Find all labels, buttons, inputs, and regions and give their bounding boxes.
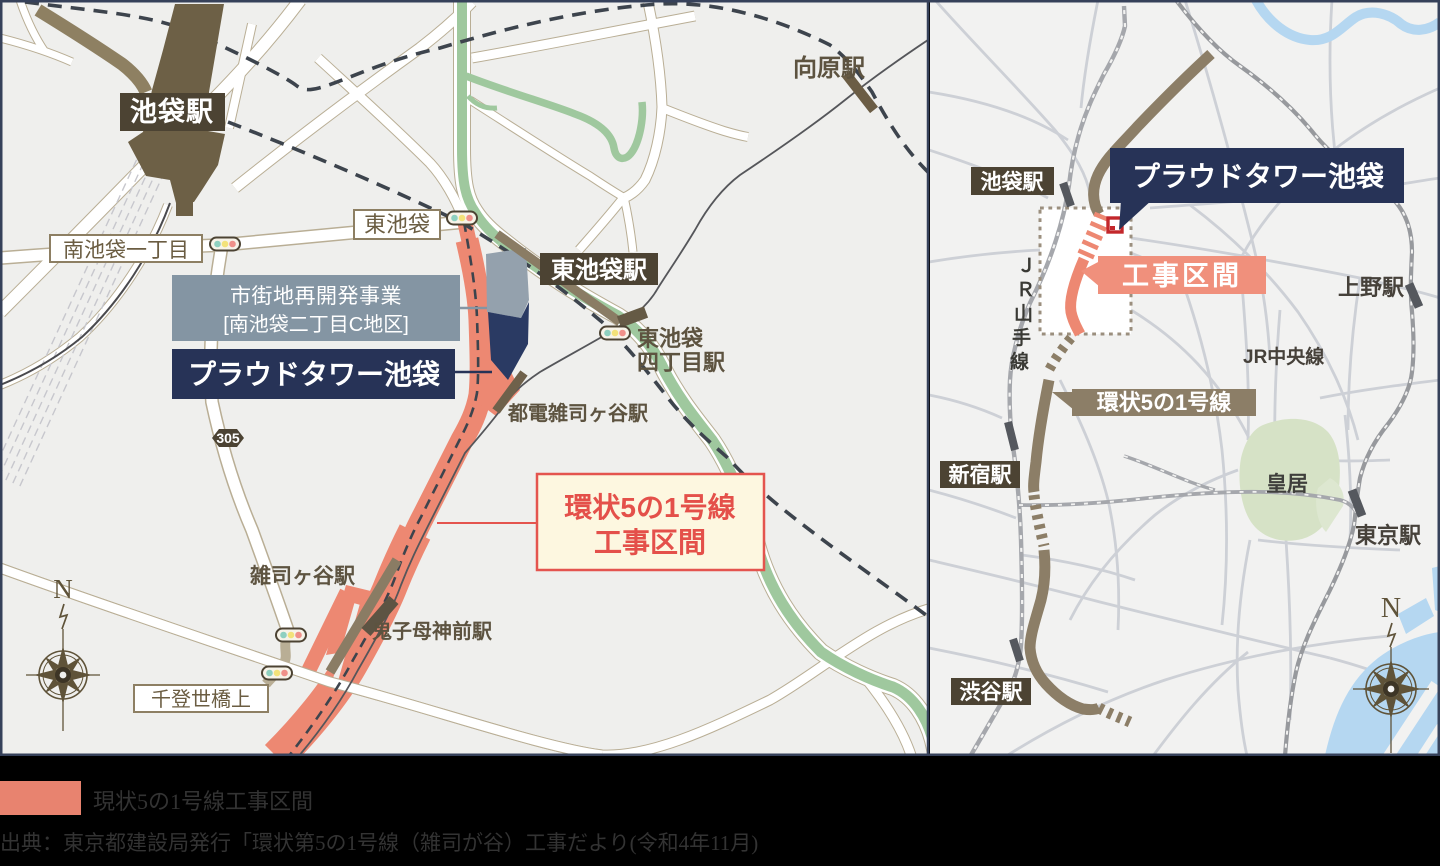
svg-text:皇居: 皇居 <box>1266 473 1308 496</box>
svg-text:千登世橋上: 千登世橋上 <box>151 688 251 711</box>
svg-text:向原駅: 向原駅 <box>793 54 865 82</box>
svg-text:東池袋駅: 東池袋駅 <box>551 256 647 284</box>
svg-text:線: 線 <box>1010 350 1029 373</box>
svg-text:東池袋: 東池袋 <box>637 326 704 351</box>
svg-text:Ｊ: Ｊ <box>1017 256 1036 277</box>
svg-text:工事区間: 工事区間 <box>594 527 706 558</box>
svg-text:都電雑司ヶ谷駅: 都電雑司ヶ谷駅 <box>507 401 648 425</box>
svg-text:環状5の1号線: 環状5の1号線 <box>564 491 735 523</box>
svg-text:池袋駅: 池袋駅 <box>130 97 214 127</box>
svg-text:雑司ヶ谷駅: 雑司ヶ谷駅 <box>249 564 356 588</box>
svg-text:環状5の1号線: 環状5の1号線 <box>1097 390 1231 415</box>
svg-text:鬼子母神前駅: 鬼子母神前駅 <box>372 619 492 643</box>
svg-text:N: N <box>1381 593 1401 624</box>
svg-text:市街地再開発事業: 市街地再開発事業 <box>230 285 402 308</box>
svg-text:渋谷駅: 渋谷駅 <box>960 681 1024 704</box>
svg-text:プラウドタワー池袋: プラウドタワー池袋 <box>188 359 441 390</box>
svg-text:東京駅: 東京駅 <box>1355 523 1421 548</box>
svg-text:出典：東京都建設局発行「環状第5の1号線（雑司が谷）工事だよ: 出典：東京都建設局発行「環状第5の1号線（雑司が谷）工事だより(令和4年11月) <box>0 831 758 855</box>
svg-text:上野駅: 上野駅 <box>1338 275 1404 300</box>
svg-text:手: 手 <box>1012 326 1031 349</box>
svg-text:Ｒ: Ｒ <box>1016 280 1035 301</box>
svg-text:305: 305 <box>216 430 240 446</box>
svg-text:池袋駅: 池袋駅 <box>981 170 1045 194</box>
svg-text:東池袋: 東池袋 <box>364 212 430 237</box>
svg-text:南池袋一丁目: 南池袋一丁目 <box>63 239 189 262</box>
svg-text:N: N <box>53 574 73 604</box>
svg-text:工事区間: 工事区間 <box>1122 261 1242 291</box>
svg-text:[南池袋二丁目C地区]: [南池袋二丁目C地区] <box>223 313 409 336</box>
svg-text:プラウドタワー池袋: プラウドタワー池袋 <box>1132 161 1385 192</box>
svg-text:JR中央線: JR中央線 <box>1243 345 1324 368</box>
svg-text:現状5の1号線工事区間: 現状5の1号線工事区間 <box>93 789 313 814</box>
svg-text:新宿駅: 新宿駅 <box>949 463 1013 487</box>
svg-text:四丁目駅: 四丁目駅 <box>637 350 725 375</box>
svg-text:山: 山 <box>1014 303 1033 325</box>
